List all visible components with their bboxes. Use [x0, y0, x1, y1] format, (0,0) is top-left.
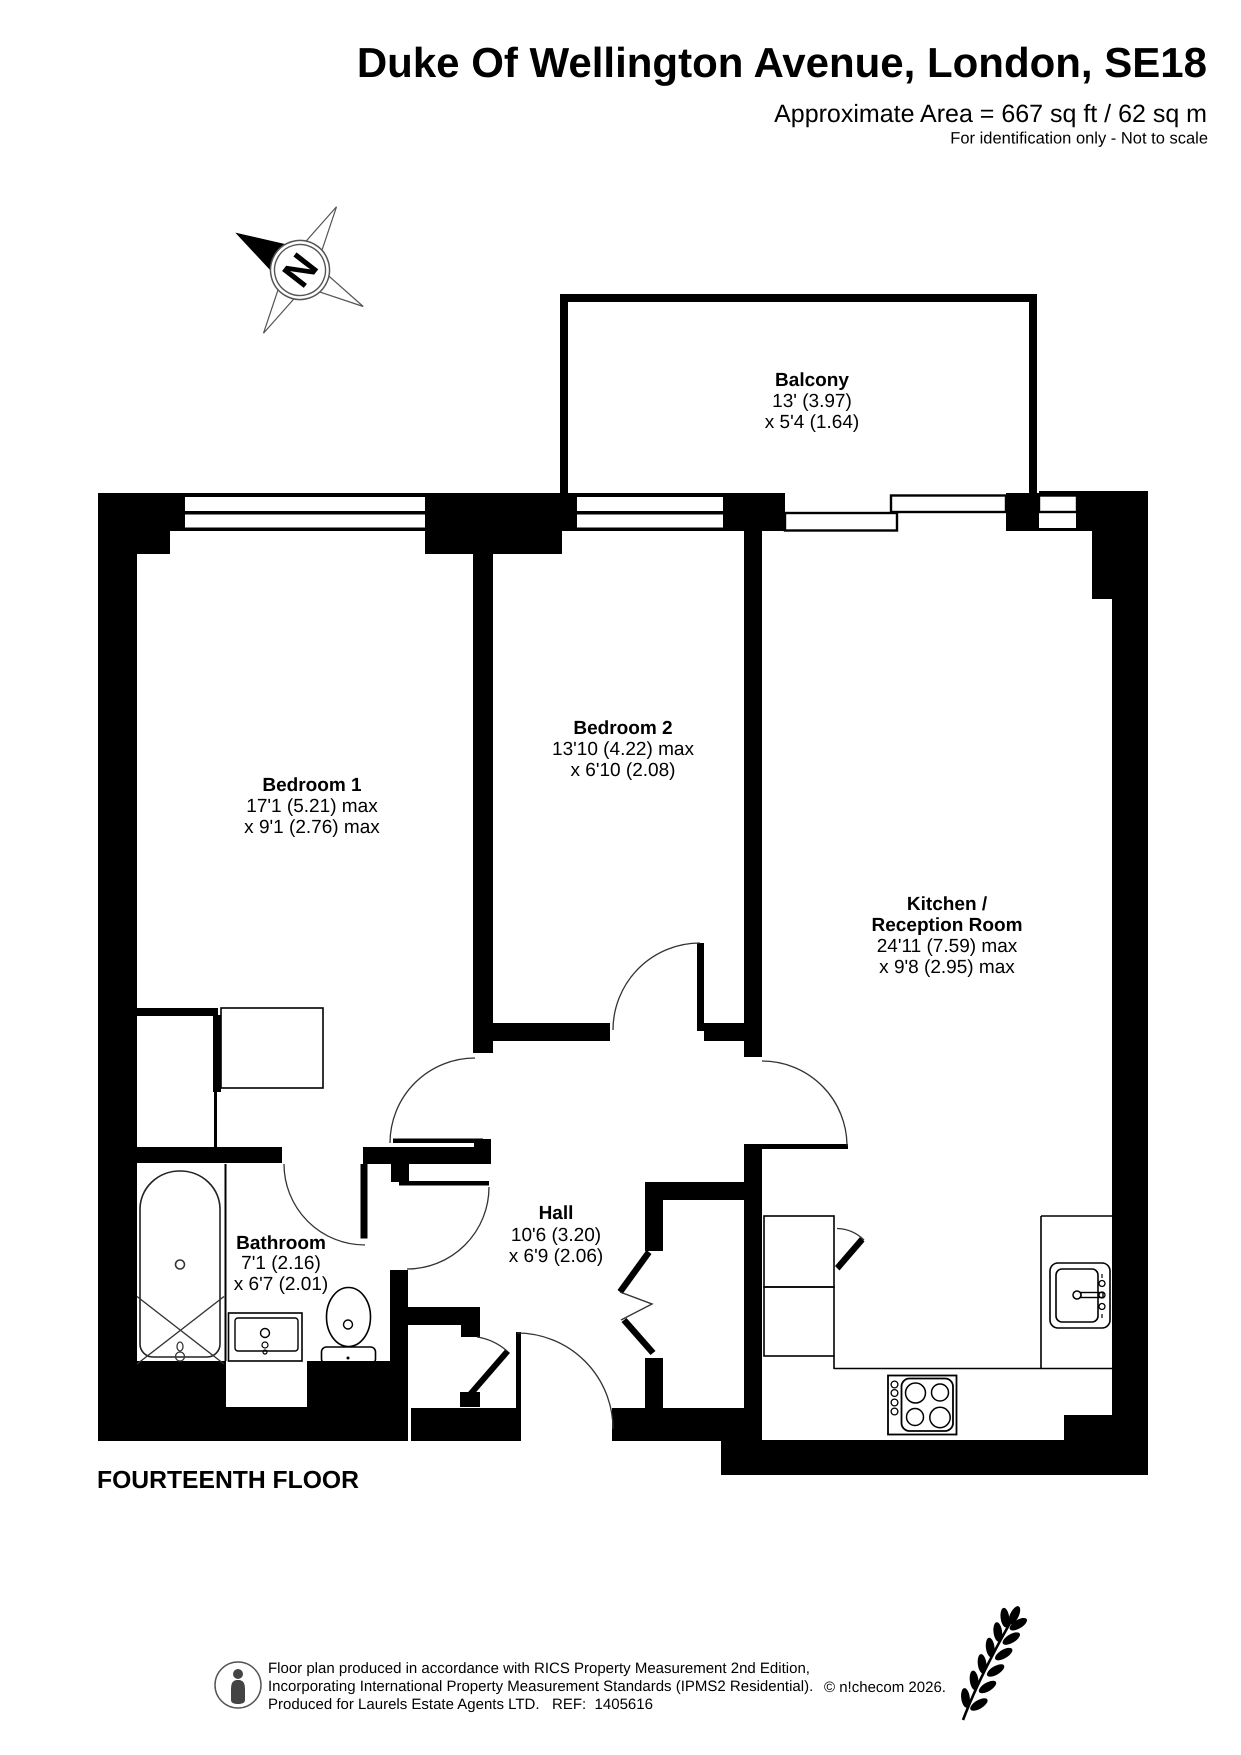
svg-text:Floor plan produced in accorda: Floor plan produced in accordance with R… [268, 1660, 810, 1677]
svg-text:x 9'1 (2.76) max: x 9'1 (2.76) max [244, 817, 380, 838]
svg-text:x 9'8 (2.95) max: x 9'8 (2.95) max [879, 957, 1015, 978]
svg-text:Bedroom 2: Bedroom 2 [573, 718, 672, 739]
svg-text:13'10 (4.22) max: 13'10 (4.22) max [552, 739, 694, 760]
svg-text:Approximate Area = 667 sq ft /: Approximate Area = 667 sq ft / 62 sq m [774, 100, 1207, 128]
svg-text:17'1 (5.21) max: 17'1 (5.21) max [246, 796, 378, 817]
svg-text:For identification only - Not: For identification only - Not to scale [950, 130, 1208, 148]
svg-text:Balcony: Balcony [775, 370, 849, 391]
svg-text:Duke Of Wellington Avenue, Lon: Duke Of Wellington Avenue, London, SE18 [357, 39, 1207, 86]
svg-text:Produced for Laurels Estate Ag: Produced for Laurels Estate Agents LTD. … [268, 1696, 653, 1713]
svg-text:FOURTEENTH FLOOR: FOURTEENTH FLOOR [97, 1467, 359, 1494]
svg-text:Bathroom: Bathroom [236, 1233, 326, 1254]
svg-text:x 6'10 (2.08): x 6'10 (2.08) [570, 760, 675, 781]
svg-text:7'1 (2.16): 7'1 (2.16) [241, 1253, 321, 1274]
svg-text:10'6 (3.20): 10'6 (3.20) [511, 1225, 601, 1246]
svg-text:13' (3.97): 13' (3.97) [772, 391, 852, 412]
svg-text:x 5'4 (1.64): x 5'4 (1.64) [765, 412, 859, 433]
svg-text:x 6'9 (2.06): x 6'9 (2.06) [509, 1246, 603, 1267]
svg-text:© n!checom 2026.: © n!checom 2026. [824, 1679, 946, 1696]
svg-text:Kitchen /: Kitchen / [907, 894, 988, 915]
svg-text:Reception Room: Reception Room [872, 915, 1023, 936]
svg-text:24'11 (7.59) max: 24'11 (7.59) max [877, 936, 1018, 957]
svg-text:x 6'7 (2.01): x 6'7 (2.01) [234, 1274, 328, 1295]
svg-text:Bedroom 1: Bedroom 1 [262, 775, 362, 796]
svg-text:Hall: Hall [539, 1203, 574, 1224]
svg-text:Incorporating International Pr: Incorporating International Property Mea… [268, 1678, 813, 1695]
